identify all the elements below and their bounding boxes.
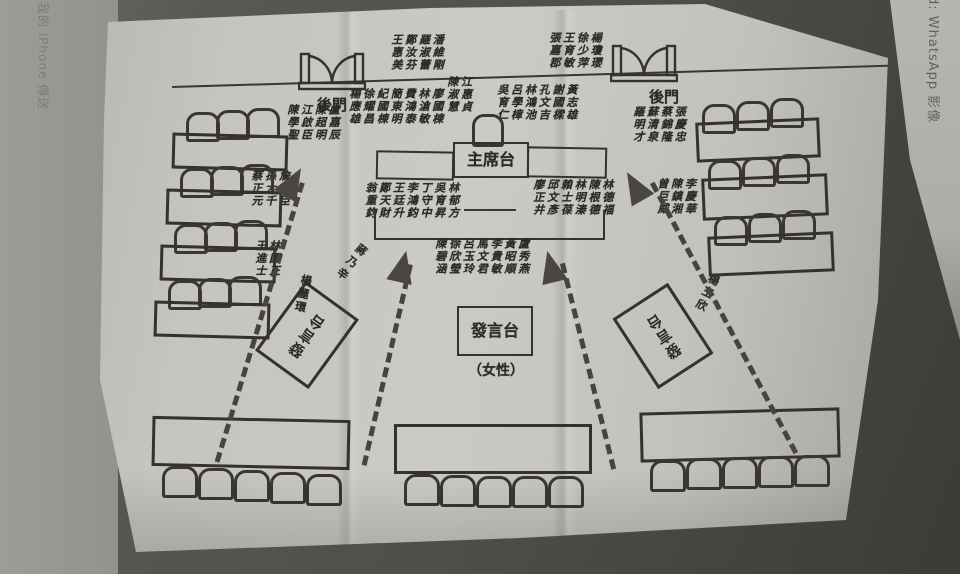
legislator-name: 簡東明: [389, 88, 401, 126]
photo-of-seating-chart: 我的 iPhone 傳送 d: WhatsApp 影像: [0, 0, 960, 574]
printed-paper: 後門 後門 王惠美鄭汝芬羅淑蕾潘維剛 張嘉郡王育敏徐少萍楊瓊瓔 楊應雄徐耀昌紀國…: [0, 0, 960, 574]
legislator-name: 李貴敏: [489, 238, 501, 276]
legislator-name: 徐耀昌: [361, 88, 373, 126]
chair-icon: [228, 276, 262, 306]
legislator-name: 呂玉玲: [461, 238, 473, 276]
arrowhead-center-right-icon: [535, 248, 568, 285]
double-door-left-icon: [298, 52, 366, 92]
legislator-name: 羅明才: [632, 106, 644, 144]
name-group-stage-rear-right: 吳育仁呂學樟林鴻池孔文吉謝國樑黃志雄: [494, 84, 578, 122]
chair-icon: [162, 466, 198, 498]
name-group-outside-door-right: 張嘉郡王育敏徐少萍楊瓊瓔: [546, 32, 603, 70]
legislator-name: 陳超明: [313, 104, 325, 142]
chair-icon: [722, 457, 758, 489]
name-aisle-left-upper: 蔣乃辛: [331, 241, 368, 284]
chair-icon: [440, 475, 476, 507]
chair-icon: [270, 472, 306, 504]
underlying-sheet-right: [880, 0, 960, 574]
podium-right-label: 發言台: [640, 309, 685, 363]
legislator-name: 楊應雄: [348, 88, 360, 126]
arrowhead-right-icon: [616, 166, 655, 207]
legislator-name: 徐欣瑩: [447, 238, 459, 276]
legislator-name: 楊瓊瓔: [589, 32, 601, 70]
legislator-name: 林滄敏: [417, 88, 429, 126]
double-door-right-icon: [610, 44, 678, 84]
legislator-name: 江啟臣: [299, 104, 311, 142]
seating-table: [151, 416, 350, 470]
name-group-left-wing-top: 陳學聖江啟臣陳超明盧嘉辰: [284, 104, 341, 142]
name-group-stage-rear-center: 陳淑慧江惠貞: [444, 76, 473, 114]
legislator-name: 謝國樑: [551, 84, 563, 122]
legislator-name: 張慶忠: [673, 106, 685, 144]
edge-text-right: d: WhatsApp 影像: [925, 0, 944, 123]
legislator-name: 盧嘉辰: [327, 104, 339, 142]
legislator-name: 孔文吉: [537, 84, 549, 122]
legislator-name: 王育敏: [561, 32, 573, 70]
legislator-name: 費鴻泰: [403, 88, 415, 126]
platform-front-edge: [374, 210, 605, 240]
legislator-name: 羅淑蕾: [417, 34, 429, 72]
chair-icon: [512, 476, 548, 508]
legislator-name: 徐少萍: [575, 32, 587, 70]
chair-icon: [686, 458, 722, 490]
chair-icon: [234, 470, 270, 502]
name-group-outside-door-left: 王惠美鄭汝芬羅淑蕾潘維剛: [388, 34, 445, 72]
legislator-name: 林鴻池: [523, 84, 535, 122]
chair-icon: [758, 456, 794, 488]
name-group-floor-center: 陳碧涵徐欣瑩呂玉玲馬文君李貴敏黃昭順盧秀燕: [432, 238, 530, 276]
legislator-name: 李慶華: [683, 178, 695, 216]
legislator-name: 陳鎮湘: [669, 178, 681, 216]
legislator-name: 陳碧涵: [434, 238, 446, 276]
seating-table: [394, 424, 592, 474]
legislator-name: 潘維剛: [431, 34, 443, 72]
legislator-name: 張嘉郡: [548, 32, 560, 70]
legislator-name: 江惠貞: [459, 76, 471, 114]
screen-margin-left: [0, 0, 118, 574]
legislator-name: 黃志雄: [565, 84, 577, 122]
legislator-name: 紀國棟: [375, 88, 387, 126]
legislator-name: 陳淑慧: [446, 76, 458, 114]
legislator-name: 廖國棟: [430, 88, 442, 126]
platform-side-table-left: [376, 150, 454, 180]
name-group-stage-rear-left: 楊應雄徐耀昌紀國棟簡東明費鴻泰林滄敏廖國棟: [346, 88, 444, 126]
chair-icon: [794, 455, 830, 487]
legislator-name: 鄭汝芬: [403, 34, 415, 72]
podium-left-label: 發言台: [284, 308, 331, 362]
legislator-name: 馬文君: [475, 238, 487, 276]
chair-icon: [476, 476, 512, 508]
legislator-name: 盧秀燕: [516, 238, 528, 276]
door-label-right: 後門: [632, 86, 696, 107]
chair-icon: [404, 474, 440, 506]
name-group-right-wing-top: 羅明才蘇清泉蔡錦隆張慶忠: [630, 106, 687, 144]
chair-icon: [240, 164, 274, 194]
chair-icon: [650, 460, 686, 492]
chair-icon: [246, 108, 280, 138]
legislator-name: 王惠美: [390, 34, 402, 72]
chair-icon: [198, 468, 234, 500]
legislator-name: 黃昭順: [503, 238, 515, 276]
podium-note-female: （女性）: [448, 360, 544, 380]
platform-side-table-right: [527, 146, 608, 178]
arrowhead-center-left-icon: [386, 248, 419, 285]
chair-icon: [548, 476, 584, 508]
edge-text-left: 我的 iPhone 傳送: [35, 2, 52, 110]
legislator-name: 呂學樟: [509, 84, 521, 122]
chair-icon: [306, 474, 342, 506]
chairman-platform: 主席台: [453, 142, 529, 178]
legislator-name: 蘇清泉: [645, 106, 657, 144]
seating-table: [707, 231, 835, 276]
legislator-name: 蔡錦隆: [659, 106, 671, 144]
speaker-podium-center: 發言台: [457, 306, 533, 356]
chair-icon: [234, 220, 268, 250]
